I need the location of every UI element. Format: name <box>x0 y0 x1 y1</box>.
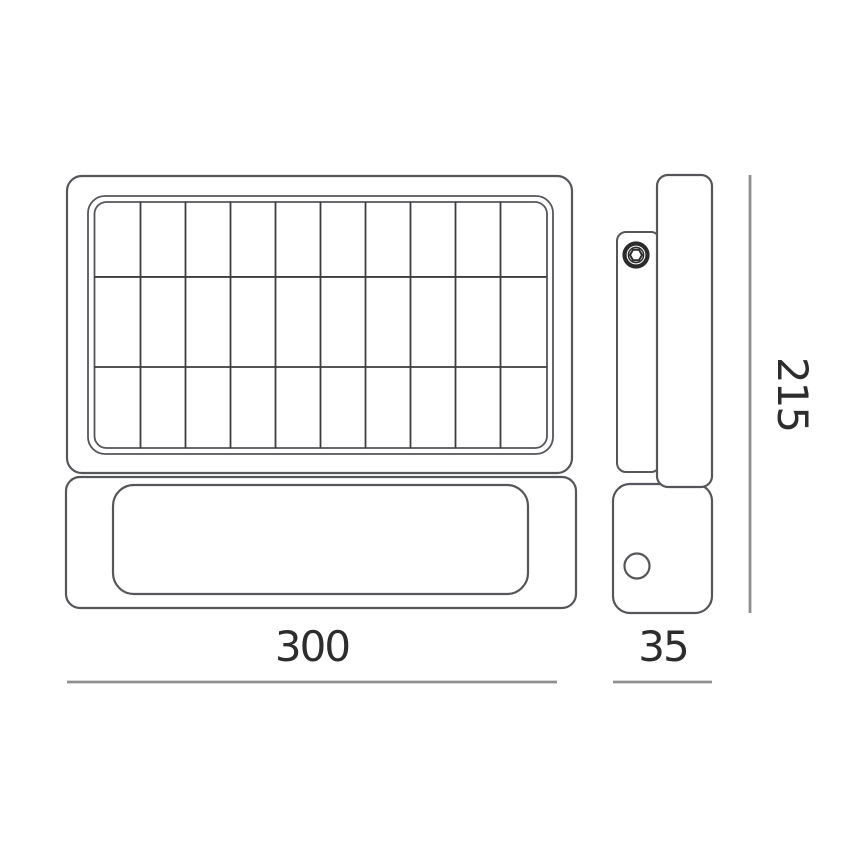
solar-grid <box>95 203 546 448</box>
width-dimension-label: 300 <box>275 622 349 671</box>
light-diffuser <box>113 485 528 594</box>
front-view <box>66 176 576 608</box>
side-panel-column <box>657 175 712 487</box>
front-upper-housing-outline <box>67 176 572 473</box>
front-lamp-housing-outline <box>66 477 576 608</box>
depth-dimension-label: 35 <box>638 622 687 671</box>
side-lamp-body <box>613 484 712 613</box>
drawing-canvas: 300 35 215 <box>0 0 868 868</box>
height-dimension-label: 215 <box>768 357 817 431</box>
side-view <box>613 175 712 613</box>
hex-bolt-icon <box>625 244 648 267</box>
dimension-labels: 300 35 215 <box>275 357 817 671</box>
technical-drawing: 300 35 215 <box>0 0 868 868</box>
